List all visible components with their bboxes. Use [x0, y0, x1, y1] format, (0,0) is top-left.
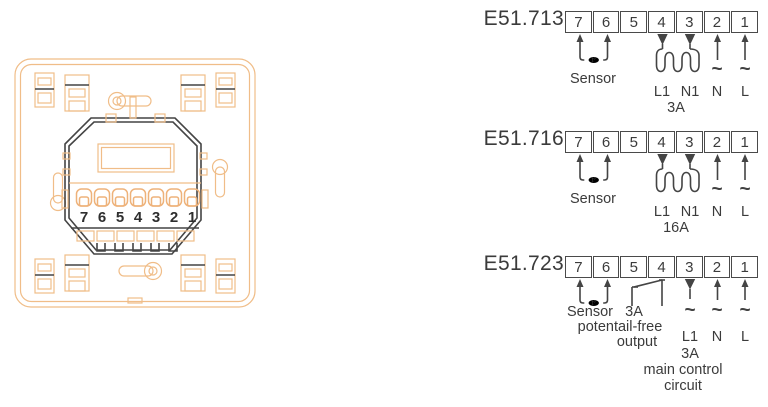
device-terminal-number: 3 [152, 209, 160, 226]
terminal-row [69, 183, 201, 206]
thermostat-backplate-drawing: 7 6 5 4 3 2 1 [13, 57, 257, 311]
line-label: L [730, 204, 760, 220]
load-rating-label: 3A [656, 100, 696, 116]
wiring-diagram-e51-713: E51.713 7 6 5 4 3 2 1 t° [480, 0, 768, 120]
terminal-cell: 6 [593, 131, 620, 153]
device-terminal-number: 2 [170, 209, 178, 226]
terminal-cell: 7 [565, 131, 592, 153]
device-terminal-number: 6 [98, 209, 106, 226]
terminal-cell: 5 [620, 256, 647, 278]
sensor-label: Sensor [558, 304, 622, 320]
ac-tilde: ~ [702, 303, 732, 319]
potential-free-label: potentail-free [565, 319, 675, 335]
terminal-cell: 7 [565, 11, 592, 33]
terminal-cell: 4 [648, 131, 675, 153]
terminal-cell: 2 [704, 11, 731, 33]
model-label: E51.716 [480, 127, 564, 151]
ac-tilde: ~ [730, 62, 760, 78]
switch-rating-label: 3A [614, 304, 654, 320]
terminal-cell: 6 [593, 11, 620, 33]
wiring-diagram-e51-716: E51.716 7 6 5 4 3 2 1 t° [480, 120, 768, 240]
neutral-label: N [702, 84, 732, 100]
display-window [98, 144, 174, 172]
terminal-cell: 6 [593, 256, 620, 278]
terminal-strip: 7 6 5 4 3 2 1 [565, 11, 758, 33]
sensor-symbol-text: t° [592, 58, 597, 64]
terminal-cell: 2 [704, 256, 731, 278]
up-arrow-icon [714, 279, 749, 300]
up-arrow-icon [714, 154, 749, 180]
neutral-label: N [702, 204, 732, 220]
model-label: E51.723 [480, 252, 564, 276]
terminal-cell: 5 [620, 11, 647, 33]
terminal-cell: 5 [620, 131, 647, 153]
heater-element-icon [657, 34, 700, 72]
sensor-icon: t° [577, 154, 612, 186]
terminal-strip: 7 6 5 4 3 2 1 [565, 131, 758, 153]
sensor-symbol-text: t° [592, 178, 597, 184]
load-rating-label: 16A [656, 220, 696, 236]
main-control-label: main control [628, 362, 738, 378]
line-label: L [730, 329, 760, 345]
ac-tilde: ~ [730, 303, 760, 319]
terminal-cell: 3 [676, 256, 703, 278]
down-arrow-icon [685, 279, 695, 299]
wiring-diagram-e51-723: E51.723 7 6 5 4 3 2 1 t° [480, 245, 768, 407]
terminal-cell: 1 [731, 256, 758, 278]
ac-tilde: ~ [702, 62, 732, 78]
sensor-icon: t° [577, 34, 612, 66]
device-terminal-number: 7 [80, 209, 88, 226]
bottom-lever [119, 263, 162, 280]
l1-rating-label: 3A [670, 346, 710, 362]
device-terminal-number: 1 [188, 209, 196, 226]
up-arrow-icon [714, 34, 749, 60]
terminal-cell: 3 [676, 131, 703, 153]
terminal-cell: 3 [676, 11, 703, 33]
terminal-cell: 2 [704, 131, 731, 153]
neutral-label: N [702, 329, 732, 345]
keyhole-slot-right [213, 160, 228, 198]
page: 7 6 5 4 3 2 1 E51.713 7 6 5 4 3 2 1 [0, 0, 768, 407]
device-terminal-number: 5 [116, 209, 124, 226]
keyhole-slot-left [51, 173, 66, 211]
heater-element-icon [657, 154, 700, 192]
terminal-cell: 4 [648, 256, 675, 278]
line-label: L [730, 84, 760, 100]
terminal-cell: 4 [648, 11, 675, 33]
device-terminal-numbers: 7 6 5 4 3 2 1 [80, 209, 196, 226]
terminal-strip: 7 6 5 4 3 2 1 [565, 256, 758, 278]
model-label: E51.713 [480, 7, 564, 31]
sensor-label: Sensor [563, 71, 623, 87]
device-terminal-number: 4 [134, 209, 143, 226]
terminal-cell: 1 [731, 11, 758, 33]
switch-contact-icon [632, 280, 665, 306]
ac-tilde: ~ [675, 303, 705, 319]
sensor-label: Sensor [563, 191, 623, 207]
ac-tilde: ~ [702, 182, 732, 198]
circuit-label: circuit [628, 378, 738, 394]
terminal-cell: 7 [565, 256, 592, 278]
ac-tilde: ~ [730, 182, 760, 198]
terminal-cell: 1 [731, 131, 758, 153]
